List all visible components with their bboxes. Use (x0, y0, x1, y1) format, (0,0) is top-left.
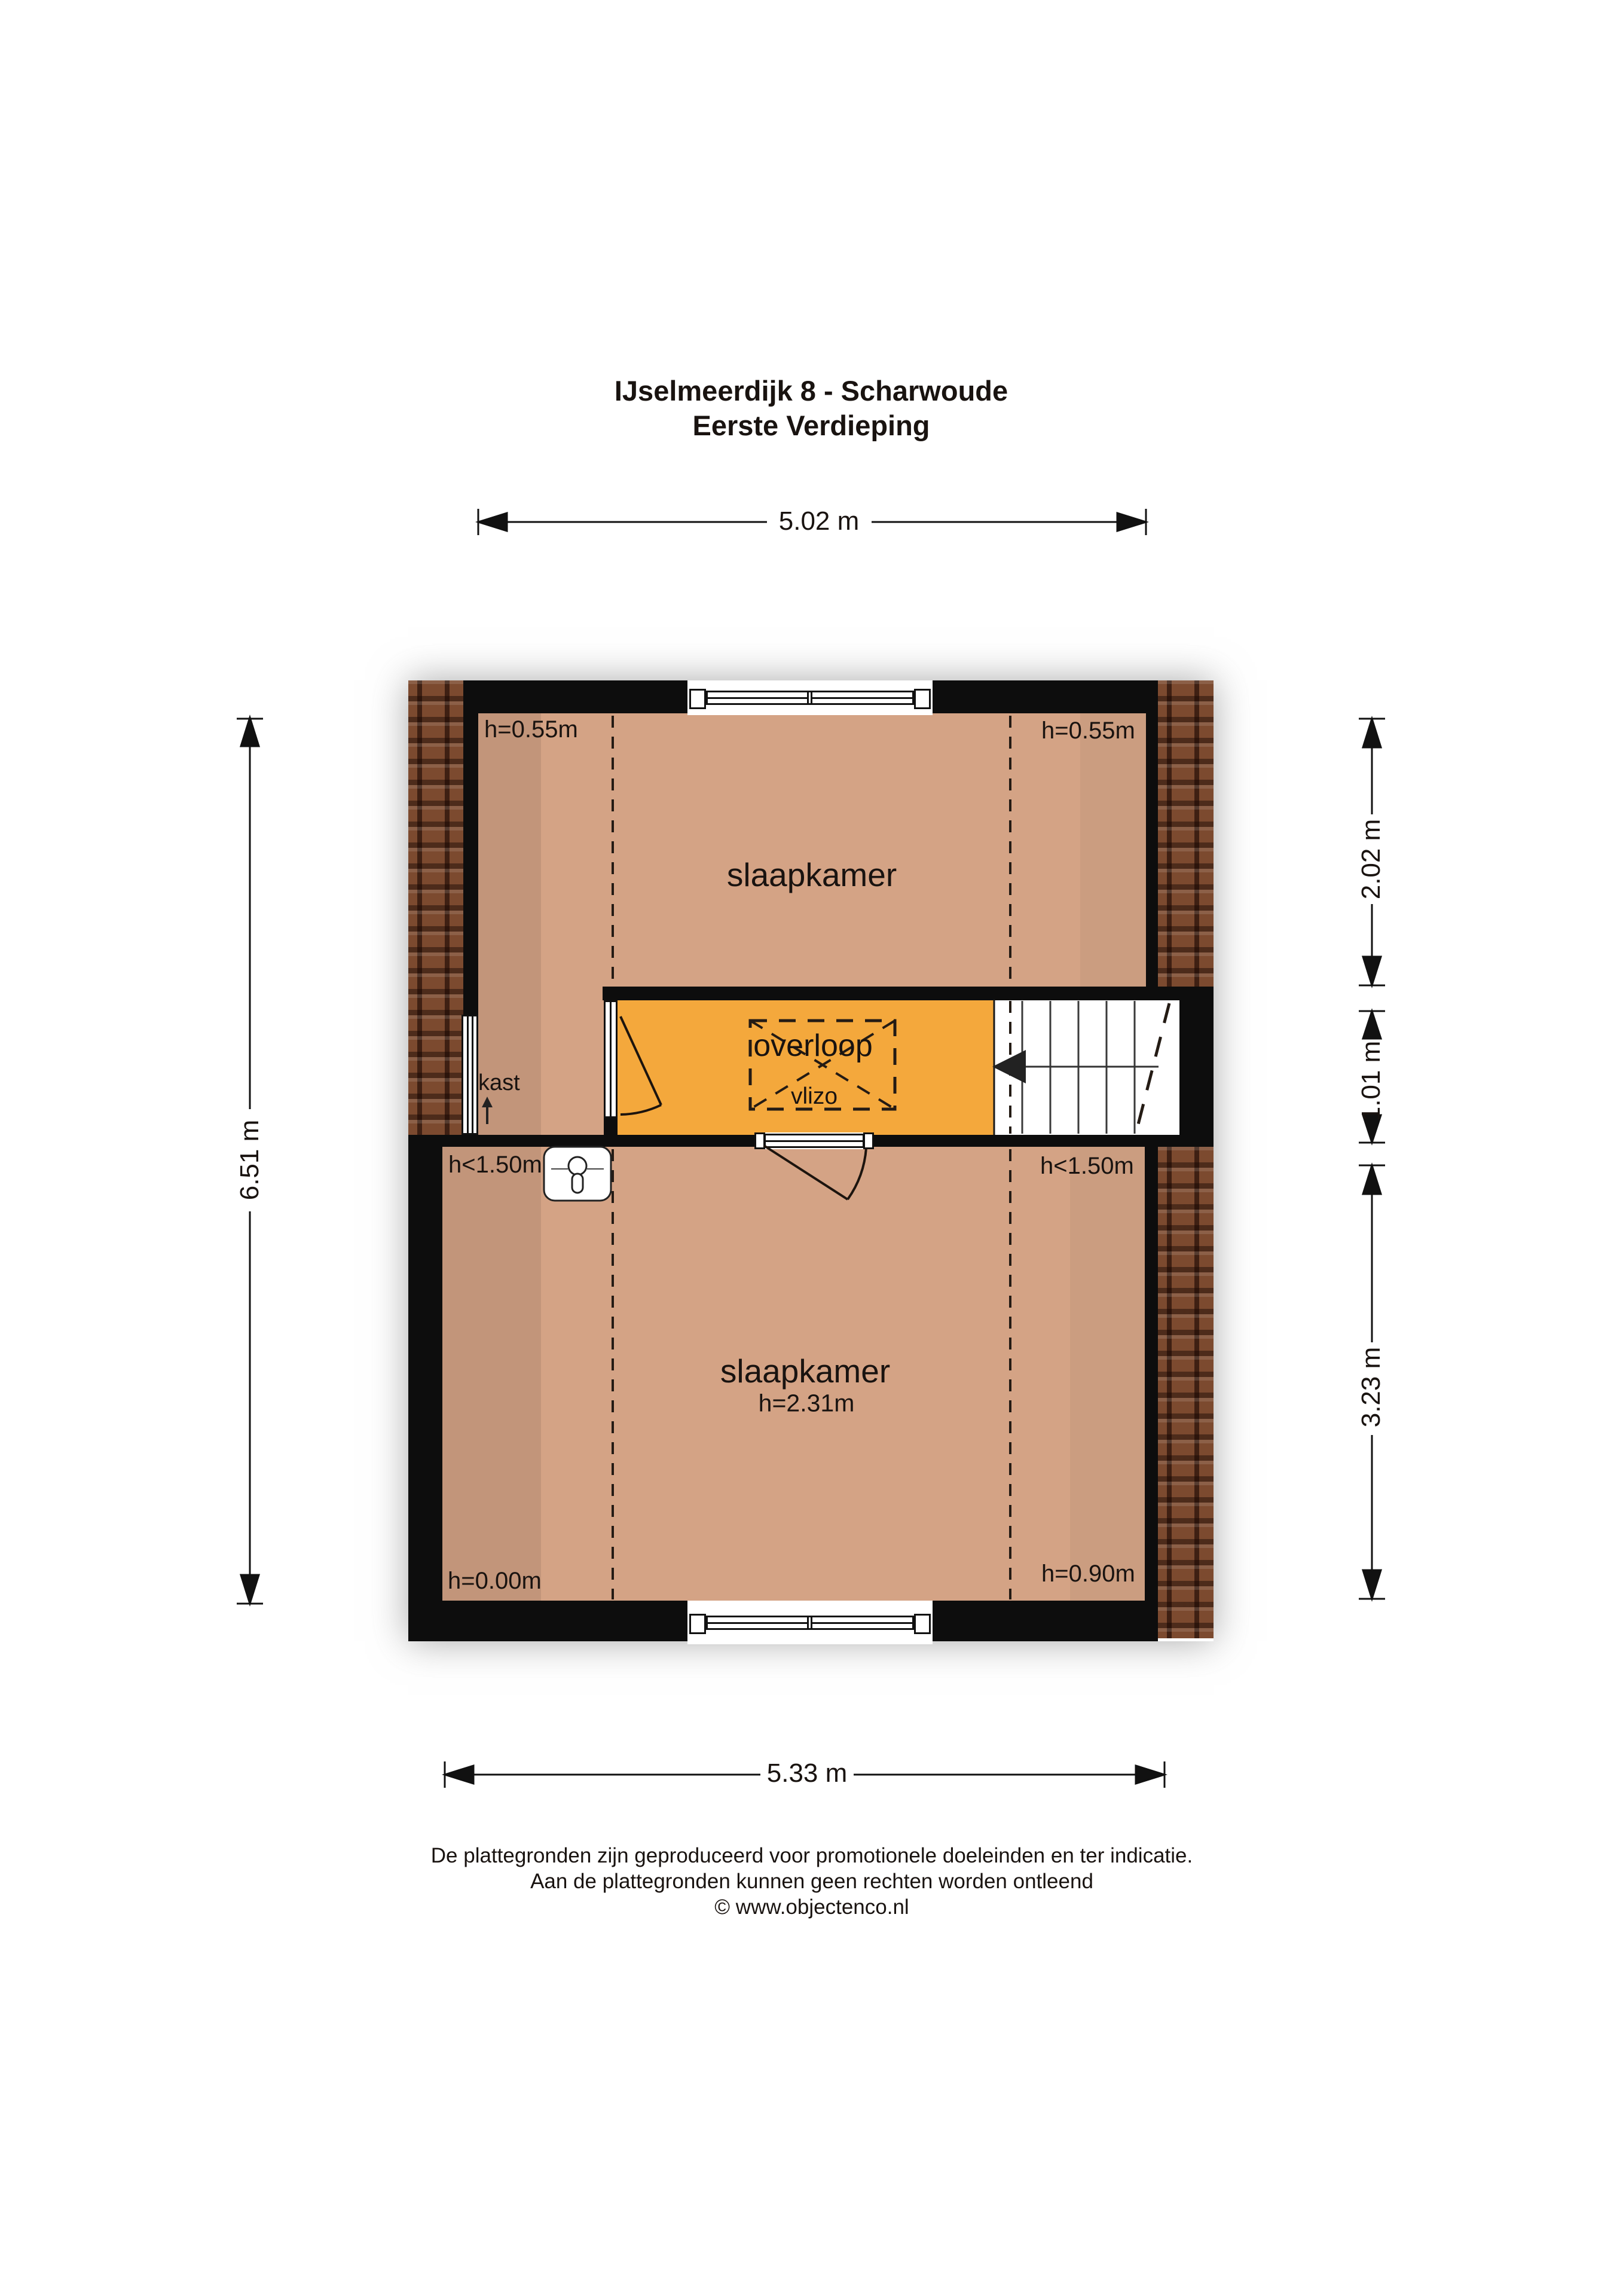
dimension-left: 6.51 m (235, 1120, 265, 1201)
staircase-area (994, 1000, 1179, 1135)
landing-label: overloop (753, 1028, 872, 1064)
window-top-mullion (807, 691, 812, 705)
bedroom-bottom-floor-shade-left (442, 1147, 541, 1601)
bedroom-bottom-height-right-bottom: h=0.90m (1041, 1561, 1135, 1587)
window-bottom-frame (706, 1616, 914, 1630)
window-top-post-left (689, 689, 706, 709)
landing-door-jamb (604, 1000, 618, 1118)
dimension-top: 5.02 m (779, 506, 860, 536)
bedroom-top-height-right: h=0.55m (1041, 717, 1135, 744)
plan-title-line2: Eerste Verdieping (615, 408, 1008, 443)
bedroom-top-floor-shade-right (1080, 713, 1146, 987)
bedroom-top-label: slaapkamer (727, 856, 897, 894)
window-bottom-mullion (807, 1616, 812, 1630)
wall-left-lower (408, 1135, 442, 1641)
room-closet-floor (478, 987, 604, 1135)
wall-left-upper (463, 680, 478, 1015)
room-bedroom-top-floor (478, 713, 1146, 987)
bedroom-bottom-height-right-top: h<1.50m (1040, 1153, 1134, 1180)
footer-disclaimer: De plattegronden zijn geproduceerd voor … (431, 1843, 1193, 1920)
roof-brick-right-top (1158, 680, 1214, 987)
window-bottom-post-right (914, 1614, 931, 1634)
vlizo-label: vlizo (791, 1083, 838, 1110)
bedroom-bottom-label: slaapkamer (720, 1352, 890, 1390)
dimension-right-top: 2.02 m (1356, 819, 1386, 900)
window-top-post-right (914, 689, 931, 709)
closet-door-panel (461, 1015, 478, 1135)
plan-title-line1: IJselmeerdijk 8 - Scharwoude (615, 374, 1008, 408)
bedroom-top-floor-shade-left (478, 713, 541, 987)
footer-line1: De plattegronden zijn geproduceerd voor … (431, 1843, 1193, 1868)
roof-brick-right-bottom (1158, 1147, 1214, 1638)
window-bottom (687, 1601, 933, 1644)
footer-line3: © www.objectenco.nl (431, 1894, 1193, 1920)
wall-stairs-right (1179, 987, 1214, 1147)
dimension-right-bottom: 3.23 m (1356, 1347, 1386, 1428)
wall-landing-door-stub (604, 1117, 618, 1135)
window-top (687, 680, 933, 715)
bedroom-door-leaf-closed (764, 1134, 864, 1148)
closet-floor-shade (478, 987, 541, 1135)
closet-label: kast (478, 1070, 520, 1096)
window-bottom-post-left (689, 1614, 706, 1634)
dimension-right-middle: 1.01 m (1356, 1041, 1386, 1122)
floorplan-page: { "title": {"line1": "IJselmeerdijk 8 - … (0, 0, 1623, 2296)
wall-right-lower (1145, 1135, 1158, 1641)
bedroom-door-threshold (754, 1132, 874, 1149)
plan-title: IJselmeerdijk 8 - Scharwoude Eerste Verd… (615, 374, 1008, 443)
bedroom-bottom-ceiling-height: h=2.31m (759, 1390, 855, 1418)
bedroom-bottom-height-left-bottom: h=0.00m (448, 1568, 542, 1595)
wall-right-upper (1146, 680, 1158, 1000)
footer-line2: Aan de plattegronden kunnen geen rechten… (431, 1868, 1193, 1894)
roof-brick-left (408, 680, 463, 1136)
bedroom-top-height-left: h=0.55m (484, 716, 578, 743)
bedroom-bottom-height-left-top: h<1.50m (448, 1152, 542, 1178)
dimension-bottom: 5.33 m (767, 1758, 848, 1788)
room-landing-floor (618, 1000, 994, 1135)
bedroom-door-post-right (863, 1132, 874, 1149)
wall-bedroomtop-landing (603, 987, 1214, 1000)
window-top-frame (706, 691, 914, 705)
bedroom-bottom-floor-shade-right (1070, 1147, 1145, 1601)
